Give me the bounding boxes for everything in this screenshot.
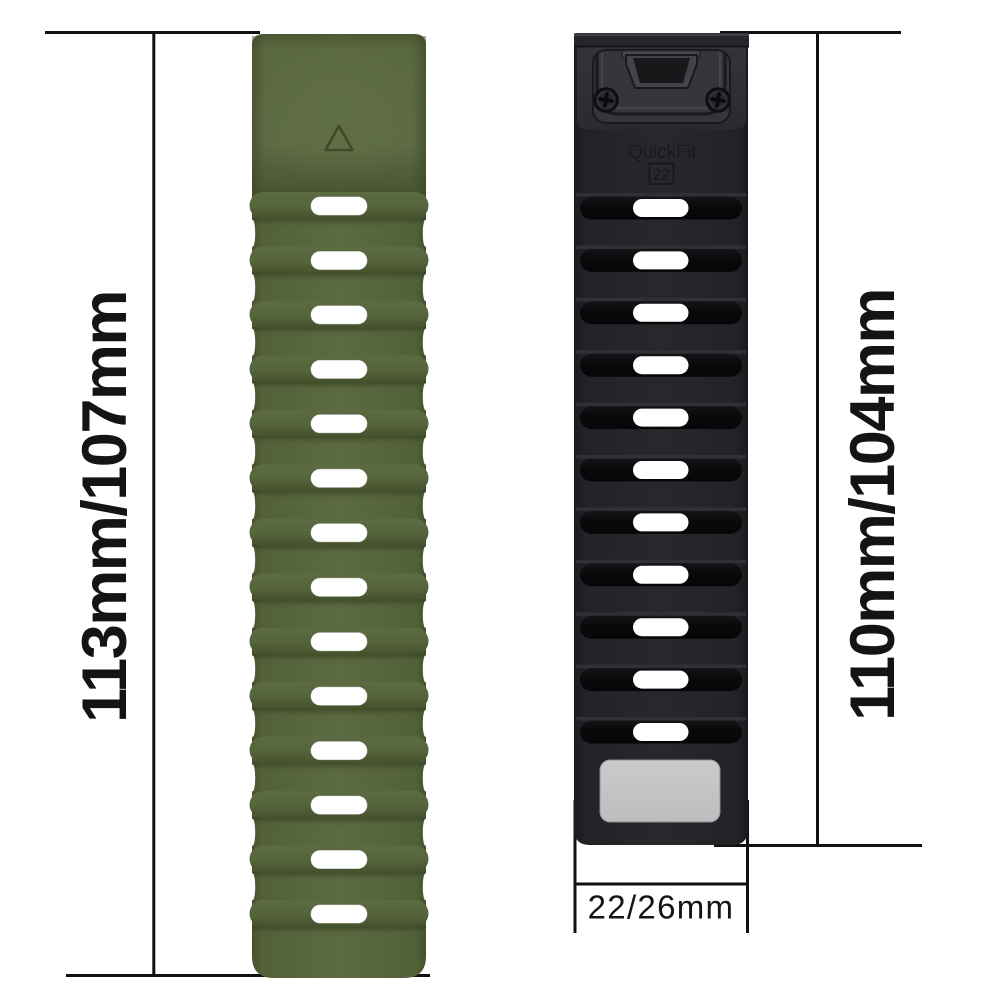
svg-text:QuickFit: QuickFit [628,141,697,163]
svg-text:113mm/107mm: 113mm/107mm [70,291,140,723]
svg-text:22/26mm: 22/26mm [588,889,735,926]
svg-text:110mm/104mm: 110mm/104mm [838,289,908,721]
svg-text:22: 22 [653,167,670,184]
